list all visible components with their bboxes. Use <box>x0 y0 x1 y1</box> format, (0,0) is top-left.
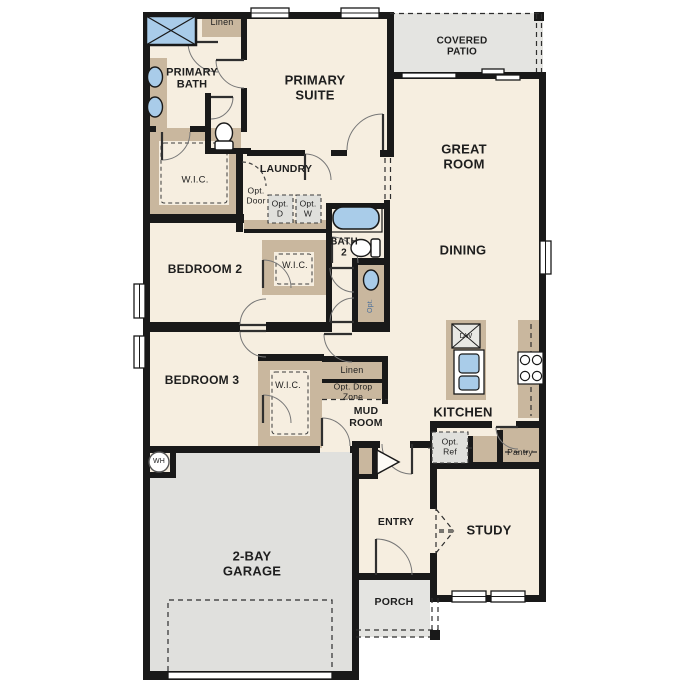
floor-plan-drawing <box>0 0 687 687</box>
window-icon <box>402 73 456 78</box>
vanity-sink-icon <box>364 270 379 290</box>
vanity-sink-icon <box>148 67 163 87</box>
toilet-icon <box>215 123 233 150</box>
kitchen-counter-bottom <box>473 436 497 462</box>
label-wic-primary: W.I.C. <box>181 176 208 187</box>
room-label-porch: PORCH <box>375 597 414 609</box>
label-opt-door: Opt. Door <box>246 186 265 205</box>
floor-plan: Linen PRIMARY BATH PRIMARY SUITE COVERED… <box>0 0 687 687</box>
label-wic-bedroom3: W.I.C. <box>275 380 301 390</box>
label-pantry: Pantry <box>507 448 533 458</box>
label-dishwasher: DW <box>460 332 473 340</box>
sliding-door-icon <box>482 69 504 74</box>
vanity-sink-icon <box>148 97 163 117</box>
cooktop-icon <box>518 352 543 384</box>
room-label-covered-patio: COVERED PATIO <box>437 36 488 59</box>
room-label-study: STUDY <box>466 524 511 539</box>
shower-icon <box>146 16 196 45</box>
room-label-bedroom2: BEDROOM 2 <box>168 263 242 277</box>
label-opt-ref: Opt. Ref <box>442 437 459 456</box>
room-label-dining: DINING <box>440 244 487 259</box>
label-linen-primary: Linen <box>210 17 233 27</box>
sliding-door-icon <box>496 75 520 80</box>
porch-post <box>430 630 440 640</box>
room-label-bath2: BATH 2 <box>330 237 358 260</box>
label-water-heater: WH <box>153 458 165 466</box>
label-opt-dryer: Opt. D <box>272 199 289 218</box>
label-opt-washer: Opt. W <box>300 199 317 218</box>
island-sink-icon <box>454 350 484 394</box>
room-label-bedroom3: BEDROOM 3 <box>165 374 239 388</box>
room-label-mud-room: MUD ROOM <box>349 406 382 430</box>
label-opt-drop-zone: Opt. Drop Zone <box>334 382 373 401</box>
label-wic-bedroom2: W.I.C. <box>282 260 308 270</box>
label-opt-sink: Opt. <box>367 299 375 313</box>
room-label-primary-suite: PRIMARY SUITE <box>285 73 346 102</box>
room-label-garage: 2-BAY GARAGE <box>223 549 281 578</box>
room-label-great-room: GREAT ROOM <box>441 142 487 171</box>
room-label-entry: ENTRY <box>378 517 414 529</box>
label-linen-hall: Linen <box>340 365 363 375</box>
room-label-laundry: LAUNDRY <box>260 164 312 176</box>
garage-door-opening <box>168 672 332 679</box>
bathtub-icon <box>333 207 379 229</box>
room-label-primary-bath: PRIMARY BATH <box>166 67 218 92</box>
room-label-kitchen: KITCHEN <box>433 406 492 421</box>
